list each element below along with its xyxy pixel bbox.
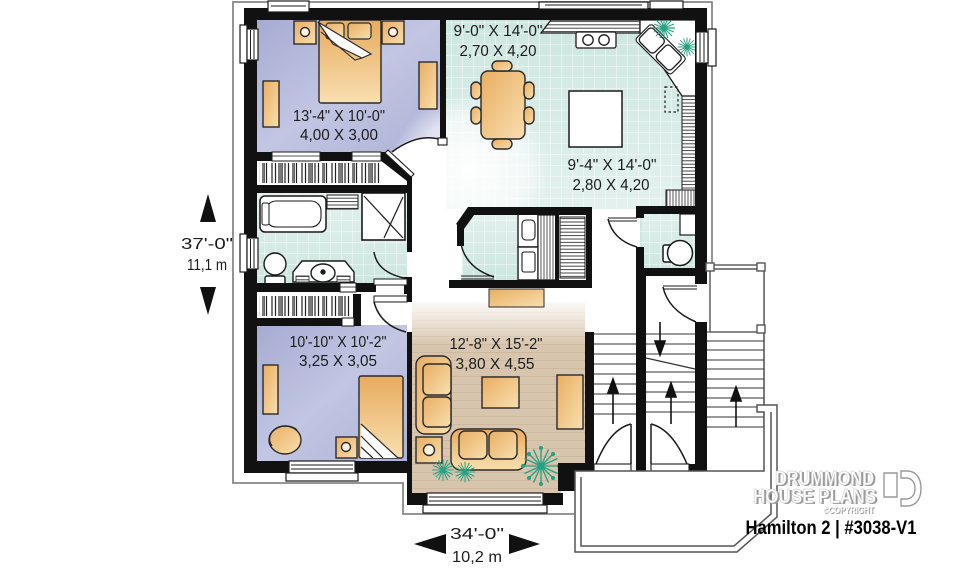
svg-text:37'-0": 37'-0" [181,236,233,253]
svg-text:9'-4" X 14'-0": 9'-4" X 14'-0" [568,157,657,174]
svg-text:©COPYRIGHT: ©COPYRIGHT [823,505,874,515]
svg-text:11,1 m: 11,1 m [187,257,227,274]
svg-text:3,25 X 3,05: 3,25 X 3,05 [299,353,377,370]
svg-text:34'-0": 34'-0" [450,526,504,543]
svg-text:12'-8" X 15'-2": 12'-8" X 15'-2" [450,336,543,353]
svg-text:4,00 X 3,00: 4,00 X 3,00 [300,127,378,144]
svg-text:2,70 X 4,20: 2,70 X 4,20 [460,43,537,60]
svg-text:13'-4" X 10'-0": 13'-4" X 10'-0" [293,108,385,125]
svg-text:9'-0" X 14'-0": 9'-0" X 14'-0" [454,23,543,40]
svg-text:3,80 X 4,55: 3,80 X 4,55 [456,356,535,373]
svg-text:2,80 X 4,20: 2,80 X 4,20 [573,177,650,194]
svg-text:Hamilton 2 | #3038-V1: Hamilton 2 | #3038-V1 [746,518,917,539]
svg-text:10,2 m: 10,2 m [452,549,502,566]
svg-text:10'-10" X 10'-2": 10'-10" X 10'-2" [290,334,387,351]
